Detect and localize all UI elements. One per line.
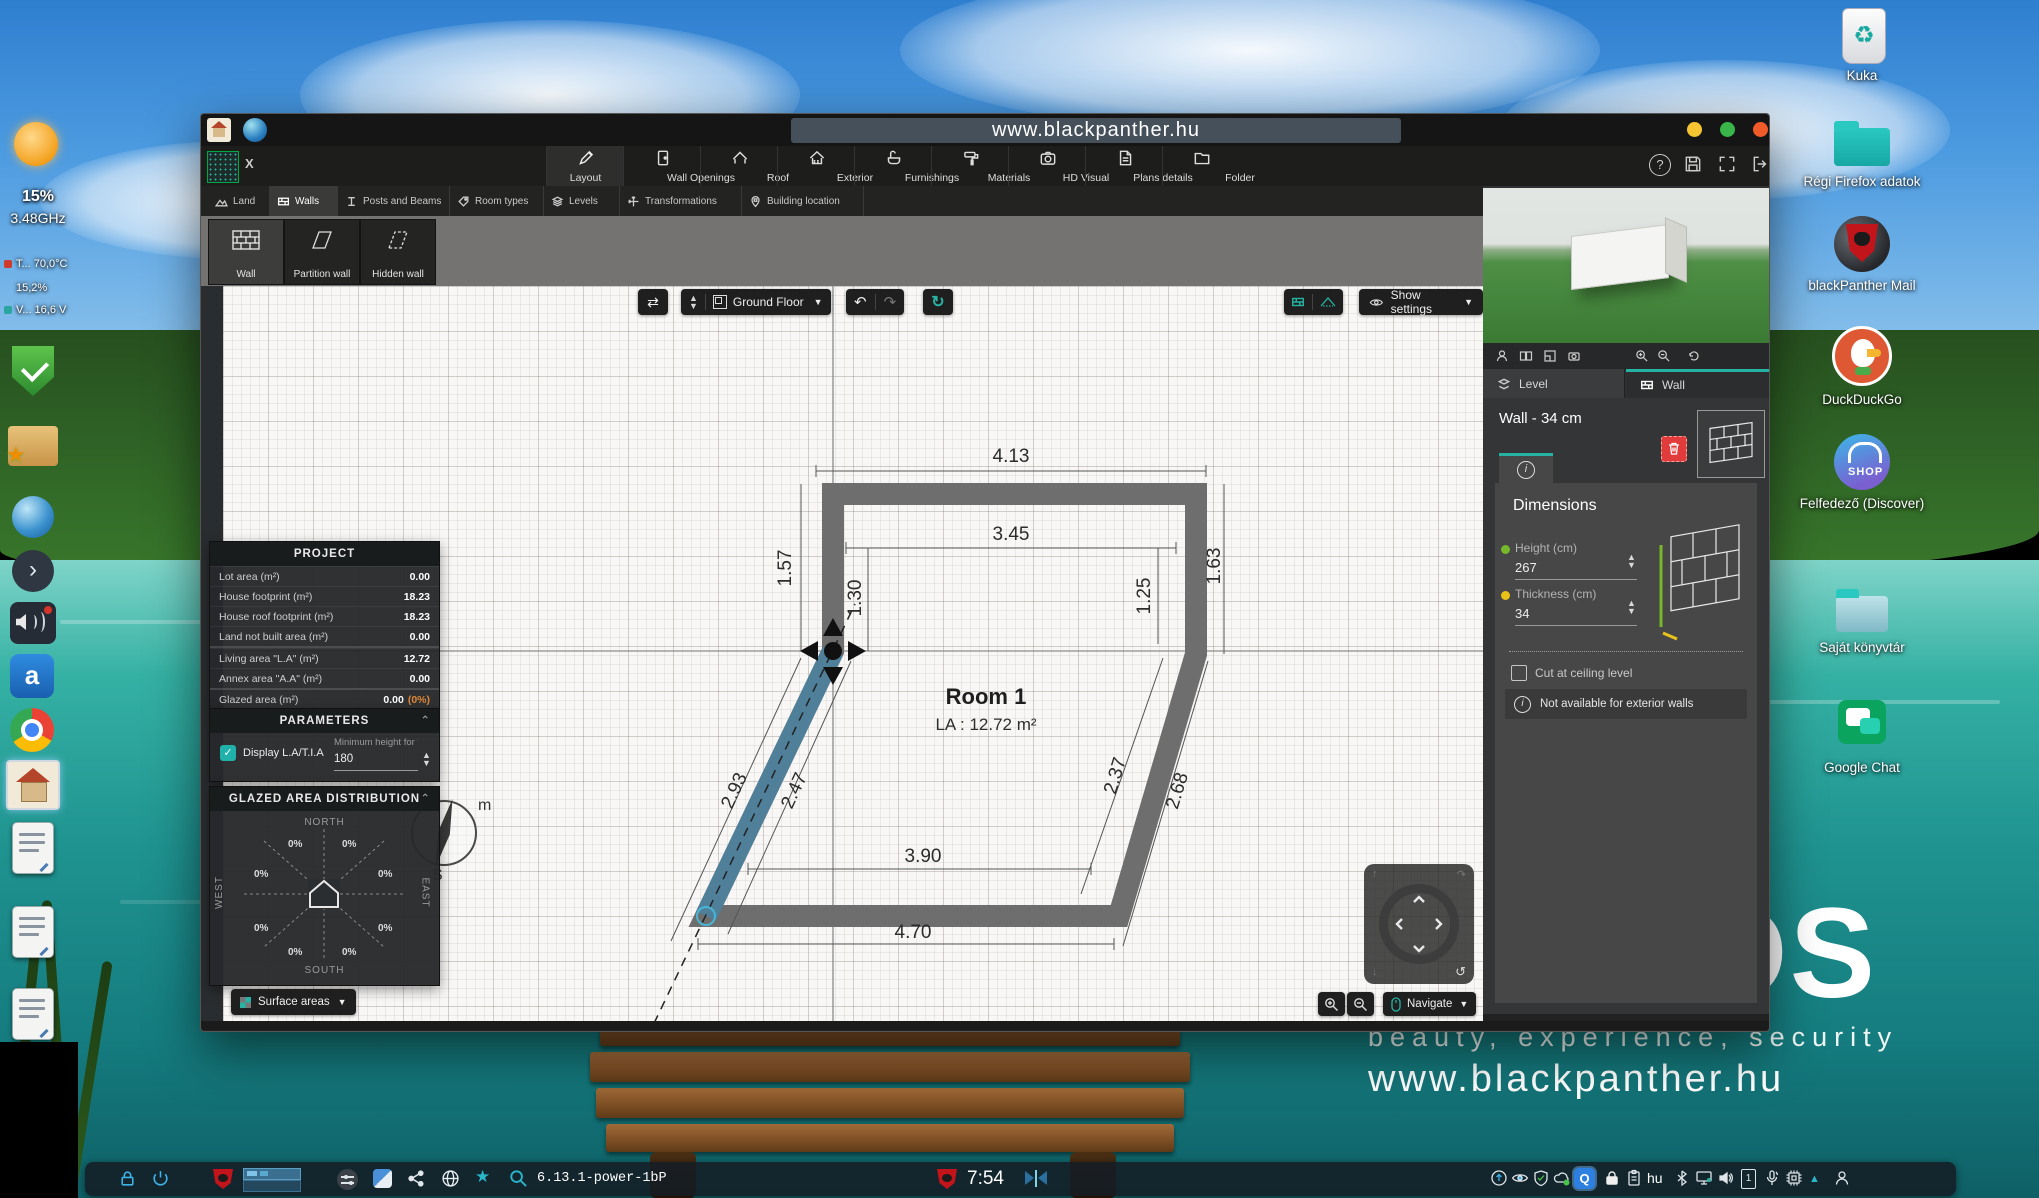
tab-wall-openings[interactable]: Wall Openings — [623, 146, 701, 186]
tab-folder[interactable]: Folder — [1162, 146, 1240, 186]
swap-view-button[interactable]: ⇄ — [638, 289, 668, 315]
north-label: NORTH — [210, 817, 439, 828]
pct-wnw: 0% — [254, 869, 268, 880]
desktop: OS beauty, experience, security www.blac… — [0, 0, 2039, 1198]
subtab-walls[interactable]: Walls — [269, 186, 338, 216]
project-row: House footprint (m²)18.23 — [210, 586, 439, 606]
min-height-input[interactable]: 180 — [334, 753, 353, 765]
navigation-pad[interactable]: ↑ ↷ ↓ ↺ — [1364, 864, 1474, 984]
dim-top-inner: 3.45 — [993, 524, 1030, 545]
tool-wall[interactable]: Wall — [208, 219, 284, 285]
microphone-icon[interactable] — [1763, 1169, 1781, 1187]
floor-stepper[interactable]: ▲▼ — [689, 294, 698, 310]
pct-ese: 0% — [378, 923, 392, 934]
map-pin-icon — [749, 195, 762, 208]
info-tab[interactable]: i — [1499, 453, 1553, 483]
project-row: Land not built area (m²)0.00 — [210, 626, 439, 646]
screen-corner — [0, 1042, 78, 1198]
floor-name: Ground Floor — [733, 295, 804, 309]
refresh-button[interactable]: ↻ — [923, 289, 953, 315]
blue-sphere-icon[interactable] — [12, 496, 54, 538]
collapse-icon[interactable]: ⌃ — [420, 709, 431, 733]
pan-up — [1414, 897, 1424, 902]
subtab-posts-and-beams[interactable]: Posts and Beams — [337, 186, 450, 216]
active-app-tray-icon[interactable]: Q — [1574, 1168, 1595, 1189]
project-thumbnail[interactable] — [207, 151, 239, 183]
rotate-corner-icon[interactable]: ↓ — [1372, 966, 1378, 978]
voltage-icon — [4, 306, 12, 314]
keyring-lock-icon[interactable] — [1603, 1169, 1621, 1187]
chrome-icon[interactable] — [10, 708, 54, 752]
transform-icon — [627, 195, 640, 208]
wall-properties: Wall - 34 cm i Dimensions Height (cm) 26… — [1483, 398, 1769, 1014]
height-input[interactable]: 267 — [1515, 560, 1537, 575]
height-dot — [1501, 545, 1510, 554]
wall-icon — [231, 227, 261, 253]
person-icon[interactable] — [1495, 349, 1509, 363]
dim-right-inner: 1.25 — [1134, 578, 1155, 615]
window-bottom-edge — [201, 1021, 1769, 1030]
folder-icon — [1834, 128, 1890, 166]
compass-m-label: m — [478, 797, 491, 814]
tag-icon — [457, 195, 470, 208]
desktop-icon-trash[interactable]: ♻ Kuka — [1796, 6, 1928, 96]
zoom-in-icon — [1324, 997, 1339, 1012]
south-label: SOUTH — [210, 965, 439, 976]
furnishings-icon — [884, 148, 904, 168]
dim-top-outer: 4.13 — [993, 446, 1030, 467]
height-stepper[interactable]: ▲▼ — [1627, 553, 1636, 569]
min-height-label: Minimum height for "L... — [334, 737, 418, 748]
thickness-input[interactable]: 34 — [1515, 606, 1529, 621]
updates-icon[interactable] — [1490, 1169, 1508, 1187]
desktop-icon-old-firefox[interactable]: Régi Firefox adatok — [1796, 118, 1928, 214]
project-row: Annex area "A.A" (m²)0.00 — [210, 668, 439, 688]
pan-down — [1414, 946, 1424, 951]
sensor-volt: V... 16,6 V — [4, 304, 66, 316]
post-icon — [345, 195, 358, 208]
window-title-box: www.blackpanther.hu — [791, 118, 1401, 143]
save-button[interactable] — [1683, 154, 1703, 179]
parameters-panel: PARAMETERS⌃ ✓ Display L.A/T.I.A Minimum … — [209, 708, 440, 782]
desktop-icon-duckduckgo[interactable]: DuckDuckGo — [1796, 326, 1928, 418]
screenshot-icon[interactable] — [1567, 349, 1581, 363]
project-row: Glazed area (m²)0.00(0%) — [210, 690, 439, 709]
dim-bottom-inner: 3.90 — [905, 846, 942, 867]
search-icon[interactable] — [509, 1169, 528, 1188]
power-icon[interactable] — [151, 1169, 170, 1188]
subtab-room-types[interactable]: Room types — [449, 186, 544, 216]
room-label: Room 1 — [946, 684, 1027, 709]
floor-icon — [713, 295, 727, 309]
rotate-corner-icon[interactable]: ↑ — [1372, 868, 1378, 880]
bluetooth-icon[interactable] — [1673, 1169, 1691, 1187]
west-label: WEST — [214, 876, 225, 909]
cut-ceiling-checkbox[interactable] — [1511, 665, 1527, 681]
chevron-down-icon: ▼ — [1459, 999, 1468, 1009]
chevron-down-icon: ▼ — [1464, 297, 1473, 307]
document-icon — [1115, 148, 1135, 168]
next-arrow-icon[interactable]: › — [12, 550, 54, 592]
subtab-land[interactable]: Land — [207, 186, 270, 216]
cpu-chip-icon[interactable] — [1785, 1169, 1803, 1187]
tab-furnishings[interactable]: Furnishings — [854, 146, 932, 186]
tool-hidden-wall[interactable]: Hidden wall — [360, 219, 436, 285]
mouse-icon — [1391, 997, 1401, 1012]
window-title: www.blackpanther.hu — [791, 118, 1401, 143]
redo-button[interactable]: ↷ — [884, 293, 897, 311]
exterior-icon — [807, 148, 827, 168]
app-window: www.blackpanther.hu X Layout Wall Openin… — [200, 113, 1770, 1032]
walls-view-icon[interactable] — [1290, 295, 1306, 309]
chevron-down-icon: ▼ — [338, 997, 347, 1007]
panther-shield-icon[interactable] — [937, 1169, 957, 1189]
fullscreen-icon — [1717, 154, 1737, 174]
glazed-percent: (0%) — [408, 694, 430, 706]
tab-hd-visual[interactable]: HD Visual — [1008, 146, 1086, 186]
tab-exterior[interactable]: Exterior — [777, 146, 855, 186]
battery-percent: 15% — [0, 188, 76, 206]
brick-icon — [277, 195, 290, 208]
favorites-folder-icon[interactable]: ★ — [8, 426, 58, 466]
security-shield-icon[interactable] — [1532, 1169, 1550, 1187]
preview-toolbar — [1483, 343, 1769, 370]
butterfly-icon[interactable] — [1025, 1169, 1047, 1189]
project-panel-title: PROJECT — [210, 542, 439, 566]
app-icon — [207, 118, 231, 142]
hidden-wall-icon — [383, 227, 413, 253]
zoom-in-icon[interactable] — [1635, 349, 1649, 363]
clipboard-icon[interactable] — [1625, 1169, 1643, 1187]
ribbon-tabs: Land Walls Posts and Beams Room types Le… — [201, 186, 1483, 216]
subtab-transformations[interactable]: Transformations — [619, 186, 742, 216]
surface-grid-icon — [240, 997, 251, 1008]
roof-icon — [730, 148, 750, 168]
zoom-out-button[interactable] — [1347, 992, 1374, 1016]
home-design-app-icon[interactable] — [6, 760, 60, 810]
fullscreen-button[interactable] — [1717, 154, 1737, 179]
reset-view-icon[interactable]: ↺ — [1455, 964, 1466, 980]
show-settings-dropdown[interactable]: Show settings ▼ — [1359, 289, 1483, 315]
tab-materials[interactable]: Materials — [931, 146, 1009, 186]
watermark-url: www.blackpanther.hu — [1368, 1058, 1784, 1101]
pct-wsw: 0% — [254, 923, 268, 934]
tab-roof[interactable]: Roof — [700, 146, 778, 186]
thickness-stepper[interactable]: ▲▼ — [1627, 599, 1636, 615]
pct-ssw: 0% — [288, 947, 302, 958]
sensor-temp: T... 70,0°C — [4, 258, 67, 270]
floorplan-icon[interactable] — [1543, 349, 1557, 363]
zoom-out-icon[interactable] — [1657, 349, 1671, 363]
titlebar[interactable]: www.blackpanther.hu — [201, 114, 1769, 146]
glazed-distribution-panel: GLAZED AREA DISTRIBUTION⌃ NORTH SOUTH WE… — [209, 786, 440, 986]
chevron-down-icon: ▼ — [814, 297, 823, 307]
zoom-out-icon — [1353, 997, 1368, 1012]
thermometer-icon — [4, 260, 12, 268]
thickness-label: Thickness (cm) — [1515, 587, 1596, 601]
layers-icon — [551, 195, 564, 208]
glazed-panel-title[interactable]: GLAZED AREA DISTRIBUTION⌃ — [210, 787, 439, 811]
camera-icon — [1038, 148, 1058, 168]
weather-icon[interactable] — [14, 122, 58, 166]
settings-sliders-icon[interactable] — [337, 1169, 358, 1190]
exit-icon — [1751, 154, 1771, 174]
desktop-icon-discover[interactable]: SHOP Felfedező (Discover) — [1796, 434, 1928, 552]
east-label: EAST — [420, 877, 431, 907]
dimensions-heading: Dimensions — [1513, 497, 1597, 515]
taskbar: ★ 6.13.1-power-1bP 7:54 Q hu 1 ▲ — [85, 1162, 1956, 1196]
delete-wall-button[interactable] — [1661, 436, 1687, 462]
trash-icon — [1667, 441, 1681, 456]
undo-button[interactable]: ↶ — [854, 293, 867, 311]
desktop-icon-home-library[interactable]: Saját könyvtár — [1792, 586, 1932, 672]
trash-icon: ♻ — [1842, 8, 1886, 64]
kernel-version: 6.13.1-power-1bP — [537, 1171, 667, 1186]
brick-icon — [1640, 378, 1654, 392]
glazed-compass-lines — [234, 819, 414, 969]
clock[interactable]: 7:54 — [967, 1168, 1004, 1190]
info-icon: i — [1517, 461, 1535, 479]
document-icon[interactable] — [12, 822, 54, 874]
thickness-dot — [1501, 591, 1510, 600]
info-icon: i — [1514, 696, 1531, 713]
wall-thumbnail[interactable] — [1697, 410, 1765, 478]
navigate-dropdown[interactable]: Navigate ▼ — [1383, 992, 1476, 1016]
exit-button[interactable] — [1751, 154, 1771, 179]
google-chat-icon — [1838, 700, 1886, 744]
wall-dimension-illustration — [1647, 515, 1751, 651]
pan-left — [1397, 919, 1402, 929]
sensor-load: 15,2% — [16, 282, 47, 294]
save-icon — [1683, 154, 1703, 174]
display-la-label: Display L.A/T.I.A — [243, 747, 324, 759]
door-icon — [653, 148, 673, 168]
eye-icon — [1369, 296, 1384, 309]
project-row: House roof footprint (m²)18.23 — [210, 606, 439, 626]
display-icon[interactable] — [1695, 1169, 1713, 1187]
divider — [1509, 651, 1743, 652]
user-icon[interactable] — [1833, 1169, 1851, 1187]
document-icon[interactable] — [12, 988, 54, 1040]
device-battery-icon[interactable]: 1 — [1741, 1169, 1756, 1189]
partition-wall-icon — [307, 227, 337, 253]
land-icon — [215, 195, 228, 208]
cpu-freq: 3.48GHz — [0, 210, 76, 226]
pct-sse: 0% — [342, 947, 356, 958]
undo-redo-group: ↶ ↷ — [846, 289, 904, 315]
level-icon — [1497, 377, 1511, 391]
zoom-in-button[interactable] — [1318, 992, 1345, 1016]
dim-rdiag-inner: 2.37 — [1100, 755, 1131, 797]
pan-right — [1436, 919, 1441, 929]
3d-preview[interactable] — [1483, 188, 1769, 343]
maximize-button[interactable] — [1720, 122, 1735, 137]
room-area-label: LA : 12.72 m² — [935, 715, 1036, 734]
brick-wall-icon — [1706, 419, 1756, 469]
desktop-pager[interactable] — [243, 1168, 299, 1190]
close-button[interactable] — [1753, 122, 1768, 137]
desktop-icon-blackpanther-mail[interactable]: blackPanther Mail — [1790, 216, 1934, 324]
cut-ceiling-label: Cut at ceiling level — [1535, 666, 1632, 680]
menubar: X Layout Wall Openings Roof Exterior Fur… — [201, 146, 1769, 186]
display-la-checkbox[interactable]: ✓ — [220, 745, 236, 761]
discover-icon: SHOP — [1834, 434, 1890, 490]
pct-ene: 0% — [378, 869, 392, 880]
exterior-walls-note: i Not available for exterior walls — [1505, 689, 1747, 719]
user-sphere-icon[interactable] — [243, 118, 267, 142]
dim-bottom-outer: 4.70 — [895, 922, 932, 943]
lock-screen-icon[interactable] — [118, 1169, 137, 1188]
close-project-button[interactable]: X — [245, 156, 254, 171]
dim-right-outer: 1.63 — [1204, 548, 1225, 585]
project-row: Lot area (m²)0.00 — [210, 566, 439, 586]
floor-selector[interactable]: ▲▼ Ground Floor ▼ — [681, 289, 831, 315]
view-toggle-group — [1284, 289, 1343, 315]
tool-partition-wall[interactable]: Partition wall — [284, 219, 360, 285]
desktop-icon-google-chat[interactable]: Google Chat — [1792, 700, 1932, 792]
dim-left-outer: 1.57 — [775, 550, 796, 587]
reset-view-icon[interactable] — [1687, 349, 1701, 363]
wall-toolstrip: Wall Partition wall Hidden wall — [201, 216, 1483, 286]
calculator-icon[interactable] — [373, 1169, 392, 1188]
project-row: Living area "L.A" (m²)12.72 — [210, 648, 439, 668]
volume-icon[interactable] — [1717, 1169, 1735, 1187]
cloud-sync-icon[interactable] — [1553, 1169, 1571, 1187]
globe-icon[interactable] — [441, 1169, 460, 1188]
tab-level[interactable]: Level — [1483, 369, 1625, 398]
pct-nne: 0% — [342, 839, 356, 850]
share-icon[interactable] — [407, 1169, 426, 1188]
roof-view-icon[interactable] — [1319, 295, 1337, 309]
pct-nnw: 0% — [288, 839, 302, 850]
height-label: Height (cm) — [1515, 541, 1577, 555]
subtab-levels[interactable]: Levels — [543, 186, 620, 216]
surface-areas-dropdown[interactable]: Surface areas ▼ — [231, 989, 356, 1015]
wall-heading: Wall - 34 cm — [1499, 410, 1582, 427]
document-icon[interactable] — [12, 906, 54, 958]
tab-layout[interactable]: Layout — [546, 146, 624, 189]
browser-app-icon[interactable]: a — [10, 654, 54, 698]
folder-icon — [1192, 148, 1212, 168]
panther-mail-icon — [1834, 216, 1890, 272]
collapse-icon[interactable]: ⌃ — [420, 787, 431, 811]
folder-icon — [1836, 596, 1888, 632]
panther-menu-icon[interactable] — [213, 1169, 233, 1189]
dim-left-inner: 1.30 — [845, 580, 866, 617]
help-button[interactable]: ? — [1649, 154, 1671, 176]
subtab-building-location[interactable]: Building location — [741, 186, 864, 216]
volume-mixer-icon[interactable] — [10, 602, 56, 644]
tab-wall[interactable]: Wall — [1626, 369, 1769, 398]
project-panel: PROJECT Lot area (m²)0.00 House footprin… — [209, 541, 440, 710]
parameters-panel-title[interactable]: PARAMETERS⌃ — [210, 709, 439, 733]
rotate-corner-icon[interactable]: ↷ — [1457, 868, 1466, 881]
minimize-button[interactable] — [1687, 122, 1702, 137]
duckduckgo-icon — [1832, 326, 1892, 386]
properties-panel: Level Wall Wall - 34 cm i Dimensions Hei… — [1483, 186, 1769, 1014]
compare-icon[interactable] — [1519, 349, 1533, 363]
paint-roller-icon — [961, 148, 981, 168]
favorites-star-icon[interactable]: ★ — [475, 1167, 490, 1187]
dimensions-card: Dimensions Height (cm) 267 ▲▼ Thickness … — [1495, 483, 1757, 1003]
tray-expander-icon[interactable]: ▲ — [1809, 1173, 1820, 1185]
pencil-icon — [576, 148, 596, 168]
min-height-stepper[interactable]: ▲▼ — [422, 751, 431, 767]
tab-plans-details[interactable]: Plans details — [1085, 146, 1163, 186]
eye-tray-icon[interactable] — [1511, 1169, 1529, 1187]
keyboard-layout[interactable]: hu — [1647, 1170, 1663, 1186]
